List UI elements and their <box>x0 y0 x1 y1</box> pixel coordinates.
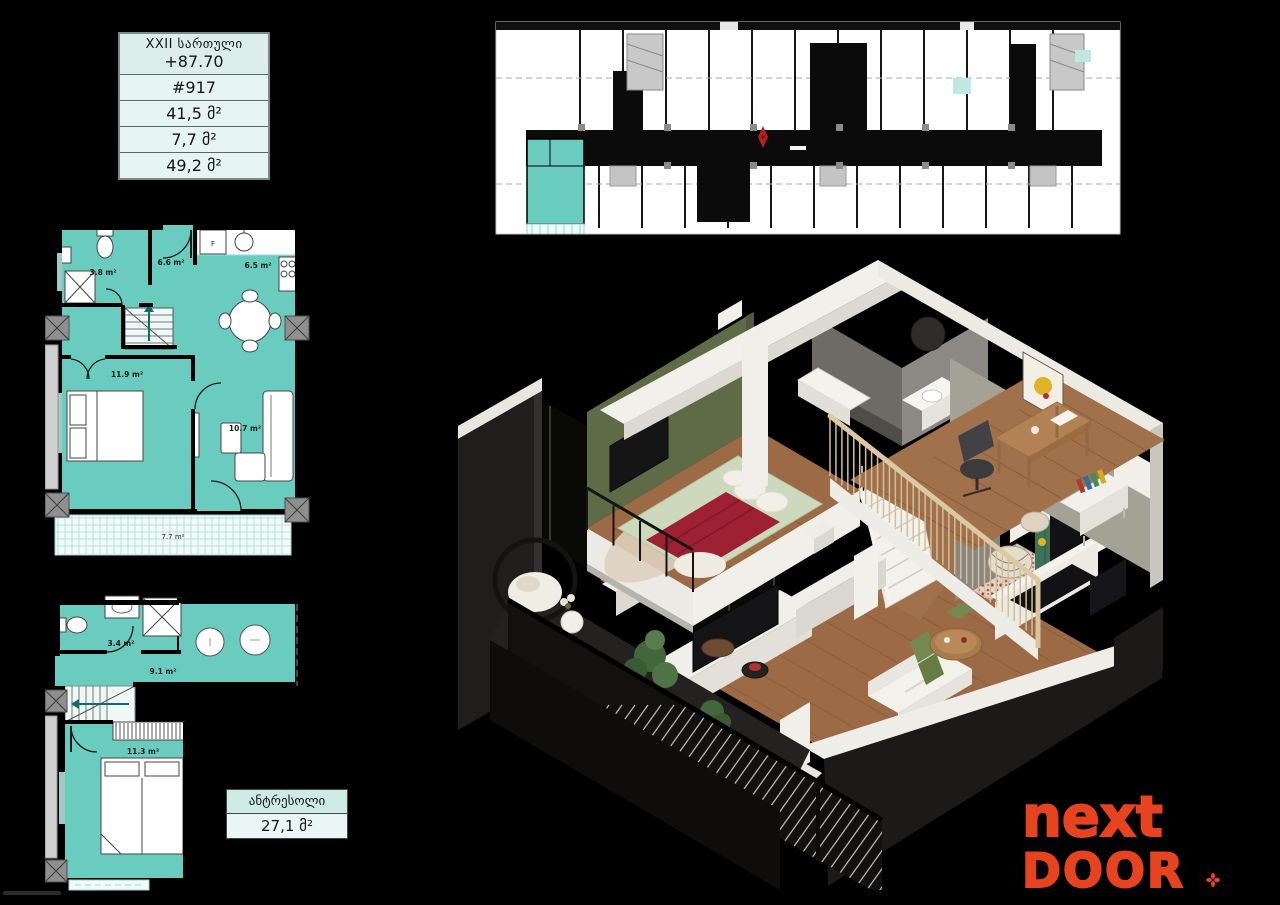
mezzanine-area: 27,1 მ² <box>227 814 347 838</box>
logo-word-door: DOOR <box>1022 848 1212 895</box>
wardrobe <box>113 722 185 740</box>
red-accent <box>749 663 761 671</box>
area-total: 49,2 მ² <box>166 156 221 175</box>
core-block <box>1010 44 1036 130</box>
mezzanine-title: ანტრესოლი <box>227 790 347 814</box>
stairs <box>65 686 135 722</box>
mirror <box>911 317 945 351</box>
page: XXII სართული +87.70 #917 41,5 მ² 7,7 მ² … <box>0 0 1280 905</box>
info-row-area-total: 49,2 მ² <box>120 153 268 178</box>
upper-floor-plan: 3.4 m² 9.1 m² 11.3 m² <box>45 582 337 894</box>
room-label-bathroom: 3.4 m² <box>108 639 135 648</box>
logo: next DOOR <box>1022 790 1212 895</box>
watermark-smudge <box>3 891 61 895</box>
side-table <box>561 611 583 633</box>
area-apartment: 41,5 მ² <box>166 104 221 123</box>
room-label-balcony: 7.7 m² <box>162 533 185 541</box>
sink <box>922 390 942 402</box>
logo-word-next: next <box>1022 790 1212 846</box>
unit-number: #917 <box>172 78 216 97</box>
info-row-floor: XXII სართული +87.70 <box>120 34 268 75</box>
room-label-hall: 6.6 m² <box>158 258 185 267</box>
room-label-bathroom: 3.8 m² <box>90 268 117 277</box>
building-overview-plan <box>490 16 1126 242</box>
bed <box>101 758 183 854</box>
coffee-table <box>702 639 734 657</box>
corridor <box>526 130 1102 166</box>
unit-info-table: XXII სართული +87.70 #917 41,5 მ² 7,7 მ² … <box>118 32 270 180</box>
mezzanine-label-box: ანტრესოლი 27,1 მ² <box>226 789 348 839</box>
bed <box>67 391 143 461</box>
info-row-unit: #917 <box>120 75 268 101</box>
fridge-label: F <box>211 240 215 248</box>
dining-table <box>229 300 271 342</box>
core-block <box>810 43 867 130</box>
info-row-area-apartment: 41,5 მ² <box>120 101 268 127</box>
core-block <box>697 166 750 222</box>
room-label-bedroom: 11.9 m² <box>111 370 143 379</box>
area-balcony: 7,7 მ² <box>171 130 216 149</box>
room-label-living: 10.7 m² <box>229 424 261 433</box>
room-label-hall: 9.1 m² <box>150 667 177 676</box>
balcony-strip <box>69 880 149 890</box>
info-row-area-balcony: 7,7 მ² <box>120 127 268 153</box>
highlighted-unit <box>527 139 584 234</box>
room-label-bedroom: 11.3 m² <box>127 747 159 756</box>
elevation-value: +87.70 <box>122 52 266 71</box>
pouf <box>1021 512 1049 532</box>
room-label-kitchen: 6.5 m² <box>245 261 272 270</box>
floor-label: XXII სართული <box>122 37 266 52</box>
lower-floor-plan: F <box>45 213 321 565</box>
stairs <box>125 304 173 349</box>
toilet <box>97 236 113 258</box>
logo-mark-icon <box>1206 873 1220 887</box>
